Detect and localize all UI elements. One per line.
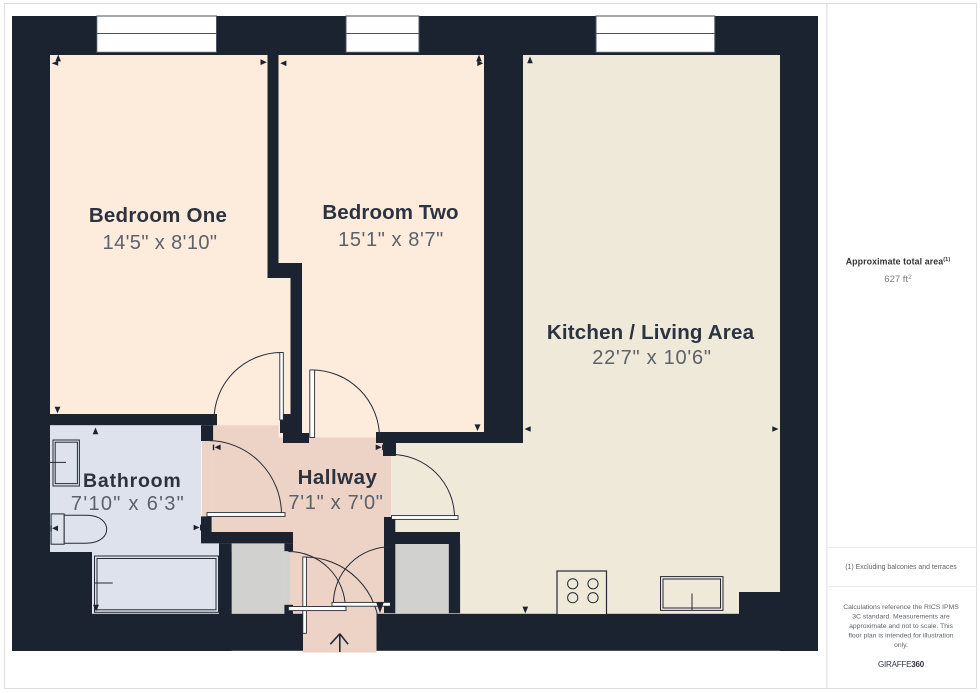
svg-text:22'7" x 10'6": 22'7" x 10'6" — [592, 347, 711, 369]
svg-text:3C standard. Measurements are: 3C standard. Measurements are — [852, 614, 950, 621]
svg-text:only.: only. — [894, 642, 908, 649]
svg-text:GIRAFFE360: GIRAFFE360 — [878, 660, 925, 669]
svg-text:Bedroom One: Bedroom One — [89, 204, 227, 227]
svg-text:Approximate total area(1): Approximate total area(1) — [846, 257, 951, 267]
svg-text:(1) Excluding balconies and te: (1) Excluding balconies and terraces — [845, 564, 957, 571]
svg-text:Bedroom Two: Bedroom Two — [322, 201, 458, 224]
svg-text:approximate and not to scale.: approximate and not to scale. This — [849, 623, 953, 630]
svg-text:15'1" x 8'7": 15'1" x 8'7" — [338, 229, 444, 251]
svg-text:7'10" x 6'3": 7'10" x 6'3" — [71, 493, 185, 515]
svg-text:14'5" x 8'10": 14'5" x 8'10" — [103, 232, 218, 254]
svg-text:Kitchen / Living Area: Kitchen / Living Area — [547, 321, 755, 344]
svg-text:Bathroom: Bathroom — [83, 470, 181, 492]
svg-text:7'1" x 7'0": 7'1" x 7'0" — [288, 492, 383, 514]
svg-text:Calculations reference the RIC: Calculations reference the RICS IPMS — [843, 604, 959, 611]
svg-text:627 ft2: 627 ft2 — [884, 274, 912, 285]
svg-text:Hallway: Hallway — [298, 466, 378, 489]
svg-text:floor plan is intended for ill: floor plan is intended for illustration — [848, 633, 953, 640]
